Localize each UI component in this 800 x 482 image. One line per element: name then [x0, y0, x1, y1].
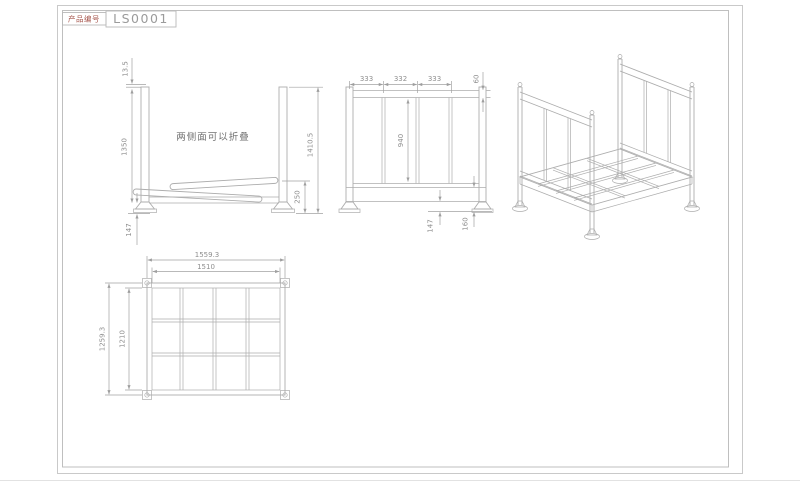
- front-left-foot: [341, 202, 358, 209]
- front-right-foot: [474, 202, 491, 209]
- side-right-post: [279, 87, 287, 202]
- dim-base-height: 160: [462, 217, 470, 230]
- fold-note: 两侧面可以折叠: [176, 131, 250, 143]
- iso-posts: [518, 55, 694, 234]
- iso-right-panel: [620, 64, 692, 176]
- dim-post-height: 1350: [121, 138, 129, 156]
- isometric-view: [513, 55, 700, 240]
- drawing-page: 产品编号 LS0001 两侧面可以折叠 13.5 1350 147: [0, 0, 800, 482]
- dim-inner-depth: 1210: [119, 330, 127, 348]
- product-number-label: 产品编号: [68, 14, 100, 24]
- iso-left-panel: [520, 92, 592, 204]
- folded-panel-2: [133, 189, 262, 202]
- plan-deck-grid: [152, 288, 280, 390]
- dim-bay3: 333: [428, 75, 441, 83]
- title-block: 产品编号 LS0001: [63, 11, 177, 27]
- dim-top-offset: 13.5: [122, 61, 130, 77]
- dim-total-height: 1410.5: [307, 133, 315, 158]
- dim-folded-height: 250: [294, 190, 302, 203]
- dim-outer-width: 1559.3: [195, 251, 220, 259]
- dim-outer-depth: 1259.3: [99, 327, 107, 352]
- dim-panel-height: 940: [397, 134, 405, 147]
- plan-view: 1559.3 1510 1259.3 1210: [99, 251, 290, 400]
- front-right-post: [479, 87, 486, 202]
- technical-drawing-canvas: 产品编号 LS0001 两侧面可以折叠 13.5 1350 147: [0, 0, 800, 482]
- front-view: 333 332 333 60 940 147 160: [339, 72, 493, 233]
- iso-base-grid: [538, 156, 674, 200]
- dim-inner-width: 1510: [197, 263, 215, 271]
- dim-clearance: 147: [427, 219, 435, 232]
- dim-rail: 60: [473, 75, 481, 84]
- side-left-post: [141, 87, 149, 202]
- dim-foot-height: 147: [125, 223, 133, 236]
- product-code-value: LS0001: [113, 11, 169, 26]
- dim-bay2: 332: [394, 75, 407, 83]
- panel-tubes: [382, 98, 452, 184]
- dim-bay1: 333: [360, 75, 373, 83]
- folded-panel-1: [170, 177, 278, 190]
- side-view: 两侧面可以折叠 13.5 1350 147 1410.5 250: [121, 58, 324, 245]
- front-left-post: [346, 87, 353, 202]
